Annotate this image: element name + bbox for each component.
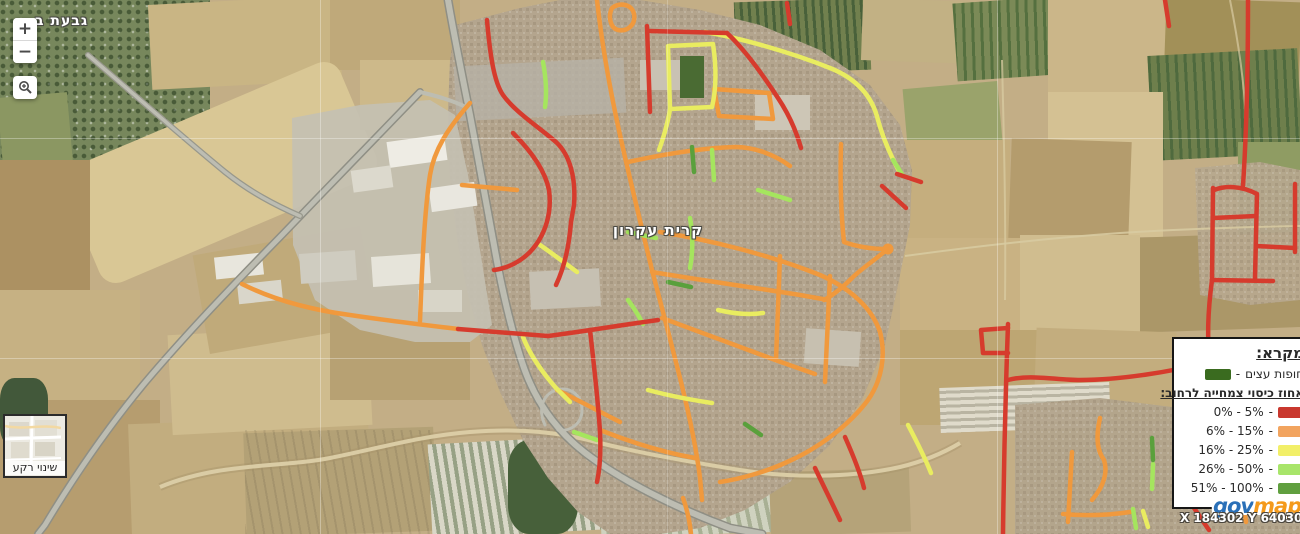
legend-entries: 0% - 5%-6% - 15%-16% - 25%-26% - 50%-51%… xyxy=(1182,405,1300,495)
zoom-out-button[interactable]: − xyxy=(13,40,37,63)
legend-separator: - xyxy=(1269,424,1273,438)
legend-tree-canopy-swatch xyxy=(1205,369,1231,380)
legend-entry-label: 0% - 5% xyxy=(1214,405,1264,419)
basemap-switch-button[interactable]: שינוי רקע xyxy=(3,414,67,478)
legend-tree-canopy-label: חופות עצים xyxy=(1245,367,1300,381)
legend-separator: - xyxy=(1269,443,1273,457)
legend-entry-row: 0% - 5%- xyxy=(1182,405,1300,419)
legend-separator: - xyxy=(1269,405,1273,419)
legend-entry-swatch xyxy=(1278,483,1300,494)
cursor-coordinates: X 184302 Y 640303 xyxy=(1180,511,1300,525)
legend-entry-swatch xyxy=(1278,426,1300,437)
gridline-vertical xyxy=(997,0,998,534)
gridline-vertical xyxy=(320,0,321,534)
legend-entry-row: 16% - 25%- xyxy=(1182,443,1300,457)
legend-entry-row: 6% - 15%- xyxy=(1182,424,1300,438)
zoom-to-area-button[interactable] xyxy=(13,76,37,99)
gridline-horizontal xyxy=(0,138,1300,139)
map-viewport[interactable]: קרית עקרון גבעת ב + − xyxy=(0,0,1300,534)
zoom-control: + − xyxy=(13,18,37,63)
map-roads-overlay xyxy=(0,0,1300,534)
legend-title: מקרא: xyxy=(1182,344,1300,362)
zoom-in-button[interactable]: + xyxy=(13,18,37,40)
legend-entry-swatch xyxy=(1278,407,1300,418)
gridline-horizontal xyxy=(0,358,1300,359)
legend-entry-label: 51% - 100% xyxy=(1191,481,1264,495)
legend-tree-canopy-row: חופות עצים - xyxy=(1182,367,1300,381)
place-label-city: קרית עקרון xyxy=(593,221,723,239)
legend-separator: - xyxy=(1269,462,1273,476)
legend-entry-label: 26% - 50% xyxy=(1198,462,1263,476)
legend-subtitle: אחוז כיסוי צמחייה לרחוב: xyxy=(1182,386,1300,400)
legend-entry-label: 6% - 15% xyxy=(1206,424,1264,438)
legend-entry-row: 51% - 100%- xyxy=(1182,481,1300,495)
magnifier-plus-icon xyxy=(18,80,33,95)
legend-separator: - xyxy=(1236,367,1240,381)
legend-entry-swatch xyxy=(1278,445,1300,456)
legend-entry-row: 26% - 50%- xyxy=(1182,462,1300,476)
legend-entry-swatch xyxy=(1278,464,1300,475)
legend-entry-label: 16% - 25% xyxy=(1198,443,1263,457)
gridline-vertical xyxy=(667,0,668,534)
place-label-corner: גבעת ב xyxy=(35,13,88,29)
legend-separator: - xyxy=(1269,481,1273,495)
legend-panel: מקרא: חופות עצים - אחוז כיסוי צמחייה לרח… xyxy=(1172,337,1300,509)
basemap-button-label: שינוי רקע xyxy=(5,461,65,475)
